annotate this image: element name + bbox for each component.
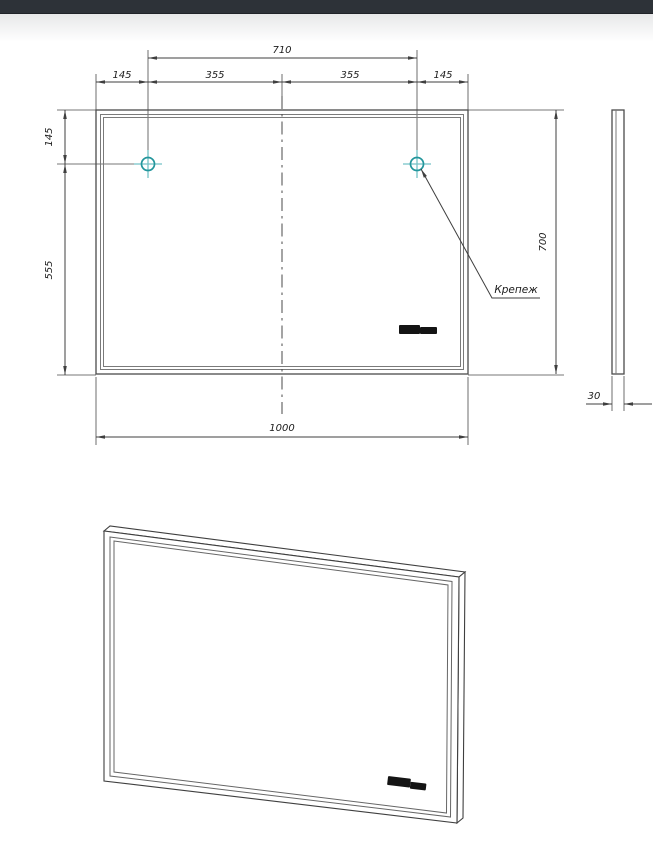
- dim-555-left: 555: [44, 260, 55, 279]
- dimension-arrows: [63, 56, 558, 439]
- page: { "drawing": { "dims": { "top_total": "7…: [0, 0, 653, 853]
- brand-logo-mark: [399, 325, 437, 334]
- mount-point-left: [134, 150, 162, 178]
- dim-355-left: 355: [205, 70, 224, 81]
- dim-355-right: 355: [340, 70, 359, 81]
- side-view: 30: [586, 110, 652, 411]
- dim-145-top-left: 145: [112, 70, 131, 81]
- dim-30-depth: 30: [588, 391, 601, 402]
- extension-lines: [57, 50, 564, 445]
- technical-drawing: 710 145 355 355 145 145 555 700 1000: [0, 0, 653, 853]
- mount-leader: Крепеж: [421, 169, 540, 298]
- mount-label: Крепеж: [494, 284, 538, 296]
- mount-point-right: [403, 150, 431, 178]
- dim-710: 710: [272, 45, 291, 56]
- dim-700-right: 700: [538, 232, 549, 251]
- perspective-view: [104, 526, 465, 823]
- dim-1000-bottom: 1000: [269, 423, 294, 434]
- dim-145-left: 145: [44, 127, 55, 146]
- dim-145-top-right: 145: [433, 70, 452, 81]
- front-view: 710 145 355 355 145 145 555 700 1000: [44, 45, 564, 445]
